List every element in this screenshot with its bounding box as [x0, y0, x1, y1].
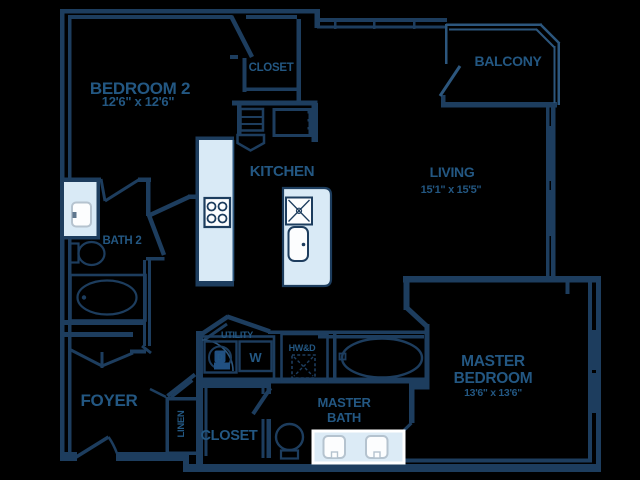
svg-text:KITCHEN: KITCHEN [250, 163, 315, 180]
svg-text:13'6" x 13'6": 13'6" x 13'6" [464, 387, 522, 399]
svg-text:HW&D: HW&D [289, 343, 317, 353]
svg-text:MASTER: MASTER [461, 353, 525, 370]
svg-text:15'1" x 15'5": 15'1" x 15'5" [421, 184, 482, 196]
svg-text:MASTER: MASTER [317, 395, 371, 410]
svg-text:UTILITY: UTILITY [221, 330, 253, 340]
svg-text:BEDROOM: BEDROOM [454, 370, 533, 387]
svg-text:CLOSET: CLOSET [249, 62, 294, 74]
svg-text:BATH: BATH [327, 410, 361, 425]
svg-text:LINEN: LINEN [176, 410, 187, 437]
svg-text:BALCONY: BALCONY [474, 53, 542, 69]
svg-text:W: W [249, 350, 262, 365]
svg-text:12'6" x 12'6": 12'6" x 12'6" [102, 94, 175, 109]
svg-text:CLOSET: CLOSET [200, 428, 257, 444]
svg-text:LIVING: LIVING [430, 164, 475, 180]
svg-text:FOYER: FOYER [80, 391, 137, 410]
svg-text:D: D [217, 353, 223, 362]
svg-text:BATH 2: BATH 2 [103, 235, 142, 247]
